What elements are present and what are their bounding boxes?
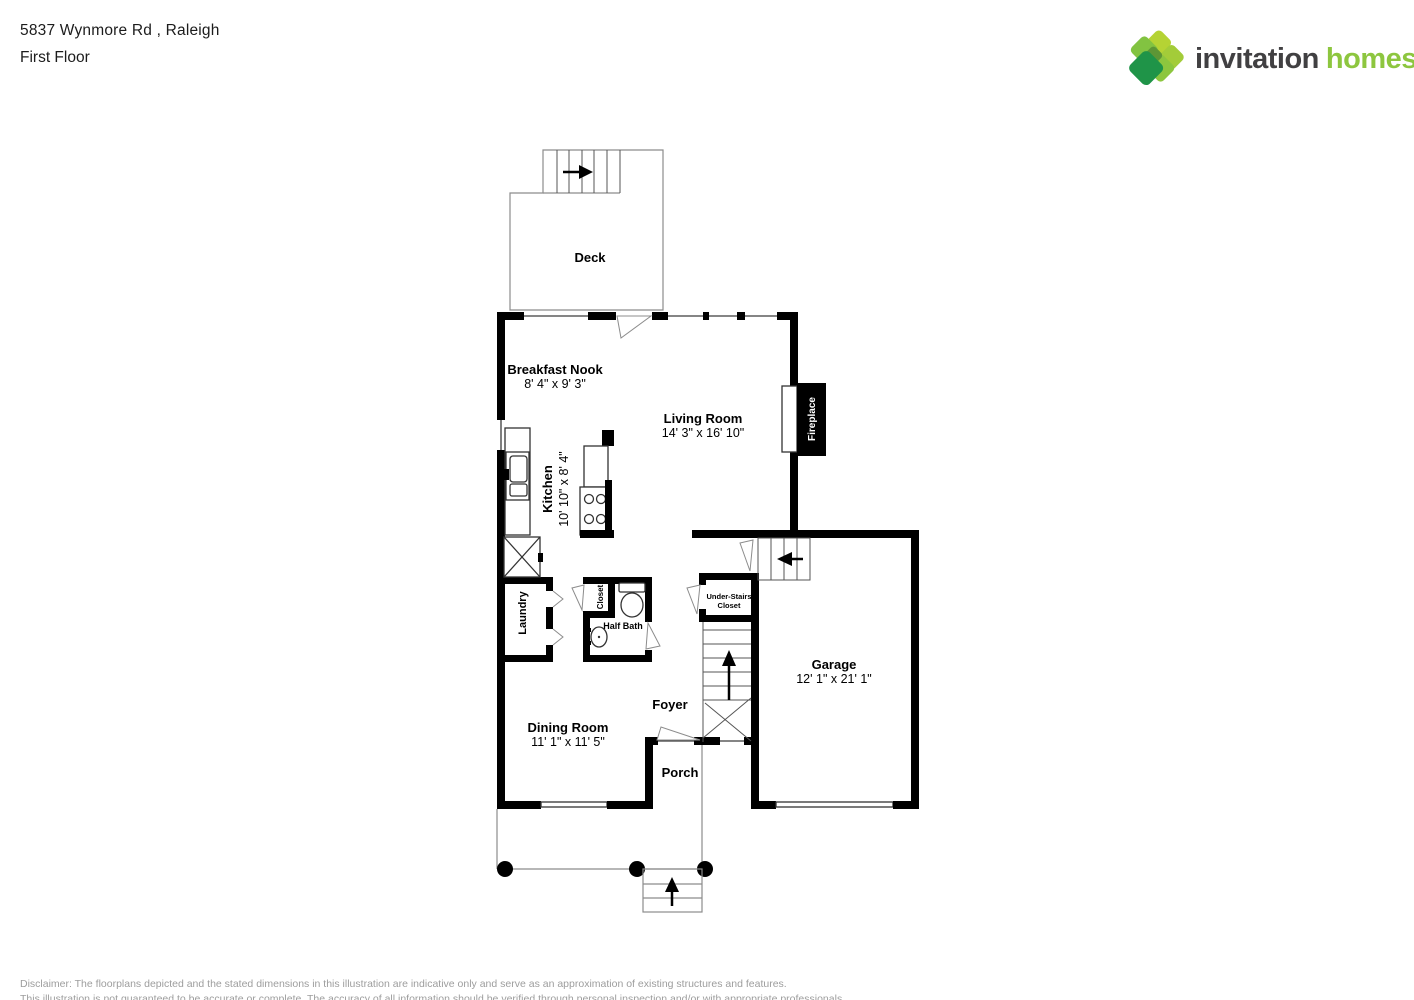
kitchen-island-range — [580, 430, 614, 538]
room-label-under-stairs-closet-line1: Under-Stairs — [706, 592, 751, 601]
room-label-breakfast-nook: Breakfast Nook — [507, 362, 603, 377]
deck-door-swing — [617, 316, 651, 338]
kitchen-counter — [504, 428, 530, 535]
washer-box — [504, 537, 543, 577]
front-door-swing — [657, 727, 700, 740]
room-label-closet: Closet — [596, 584, 605, 609]
room-label-foyer: Foyer — [652, 697, 687, 712]
garage-door-swing — [740, 540, 753, 571]
disclaimer: Disclaimer: The floorplans depicted and … — [20, 977, 1394, 1000]
floor-plan: Fireplace Deck Breakfast Nook 8' 4" x 9'… — [0, 0, 1414, 1000]
disclaimer-line-1: Disclaimer: The floorplans depicted and … — [20, 977, 1394, 992]
room-label-fireplace: Fireplace — [807, 397, 818, 441]
toilet — [619, 583, 645, 617]
room-dims-kitchen: 10' 10" x 8' 4" — [557, 451, 571, 527]
half-bath-walls — [572, 577, 660, 662]
deck-outline — [510, 150, 663, 310]
room-label-garage: Garage — [812, 657, 857, 672]
deck-stairs-direction-arrow — [563, 165, 593, 179]
room-label-living-room: Living Room — [664, 411, 743, 426]
room-dims-living-room: 14' 3" x 16' 10" — [662, 426, 744, 440]
room-label-dining-room: Dining Room — [528, 720, 609, 735]
garage-stairs-direction-arrow — [777, 552, 803, 566]
room-label-porch: Porch — [662, 765, 699, 780]
room-dims-breakfast-nook: 8' 4" x 9' 3" — [524, 377, 586, 391]
room-dims-garage: 12' 1" x 21' 1" — [796, 672, 872, 686]
disclaimer-line-2: This illustration is not guaranteed to b… — [20, 992, 1394, 1000]
room-label-laundry: Laundry — [517, 590, 529, 634]
foyer-stairs — [703, 622, 751, 742]
fireplace: Fireplace — [782, 383, 826, 456]
room-label-half-bath: Half Bath — [603, 621, 643, 631]
room-label-kitchen: Kitchen — [540, 465, 555, 513]
room-dims-dining-room: 11' 1" x 11' 5" — [531, 735, 605, 749]
porch-column — [497, 861, 513, 877]
porch-steps — [643, 869, 702, 912]
laundry-walls — [497, 577, 563, 662]
kitchen-sink — [504, 452, 529, 500]
room-label-under-stairs-closet-line2: Closet — [718, 601, 741, 610]
room-label-deck: Deck — [574, 250, 606, 265]
floorplan-page: 5837 Wynmore Rd , Raleigh First Floor in… — [0, 0, 1414, 1000]
